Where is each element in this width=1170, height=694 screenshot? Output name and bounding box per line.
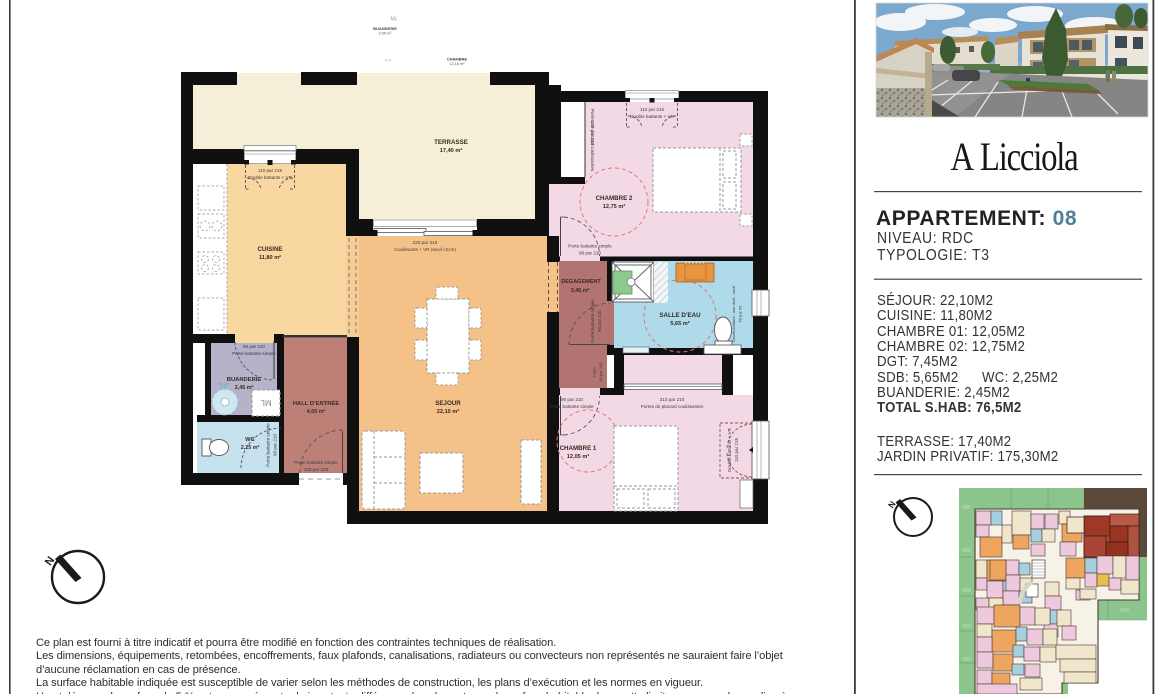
- svg-text:220 par 215: 220 par 215: [413, 240, 438, 245]
- svg-text:BUANDERIE: BUANDERIE: [373, 26, 397, 31]
- svg-text:CUISINE: CUISINE: [257, 246, 282, 253]
- svg-text:90 par 210: 90 par 210: [579, 251, 601, 256]
- svg-text:90 par 210: 90 par 210: [597, 310, 602, 332]
- svg-text:2,25 m²: 2,25 m²: [241, 445, 260, 451]
- svg-text:Porte battante simple: Porte battante simple: [568, 244, 612, 249]
- svg-text:Double battants + VR: Double battants + VR: [727, 427, 732, 471]
- svg-text:TERRASSE: TERRASSE: [434, 139, 468, 146]
- svg-text:HALL D’ENTRÉE: HALL D’ENTRÉE: [293, 399, 339, 407]
- svg-text:Porte battante simple: Porte battante simple: [550, 404, 594, 409]
- svg-text:160 par 210: 160 par 210: [590, 121, 595, 146]
- svg-text:110 par 215: 110 par 215: [734, 437, 739, 462]
- svg-text:100 par 210: 100 par 210: [304, 467, 329, 472]
- svg-text:ML: ML: [391, 17, 398, 23]
- svg-text:11,80 m²: 11,80 m²: [259, 254, 281, 261]
- svg-text:4,00 m²: 4,00 m²: [307, 409, 326, 415]
- svg-text:5,65 m²: 5,65 m²: [670, 320, 689, 327]
- svg-text:Porte battante simple: Porte battante simple: [294, 460, 338, 465]
- svg-text:12,05 m²: 12,05 m²: [567, 453, 590, 460]
- svg-text:17,40 m²: 17,40 m²: [440, 147, 463, 154]
- svg-text:Porte battante simple: Porte battante simple: [590, 299, 595, 343]
- svg-text:2,05 m²: 2,05 m²: [379, 32, 393, 36]
- svg-text:Double battants + VR: Double battants + VR: [630, 114, 674, 119]
- svg-text:Double battants + VR: Double battants + VR: [248, 175, 292, 180]
- svg-text:SEJOUR: SEJOUR: [435, 400, 461, 407]
- svg-text:Oscillo-battant - axe droit -: Oscillo-battant - axe droit - seuil: [731, 286, 736, 342]
- svg-text:DEGAGEMENT: DEGAGEMENT: [561, 279, 601, 285]
- svg-text:Portes de placard coulissantes: Portes de placard coulissantes: [641, 404, 704, 409]
- svg-text:BUANDERIE: BUANDERIE: [227, 377, 262, 383]
- svg-text:12,15 m²: 12,15 m²: [450, 62, 466, 66]
- svg-text:ML: ML: [260, 398, 272, 407]
- svg-text:CHAMBRE 2: CHAMBRE 2: [596, 195, 633, 202]
- svg-text:CHAMBRE: CHAMBRE: [447, 57, 468, 62]
- svg-text:110 par 215: 110 par 215: [640, 107, 665, 112]
- svg-text:F-S: F-S: [385, 59, 392, 63]
- svg-text:TGBT: TGBT: [592, 366, 597, 377]
- svg-text:SALLE D’EAU: SALLE D’EAU: [659, 312, 701, 319]
- svg-text:Porte battante simple: Porte battante simple: [232, 351, 276, 356]
- svg-text:12,75 m²: 12,75 m²: [603, 203, 626, 210]
- svg-text:90 par 210: 90 par 210: [273, 434, 278, 456]
- svg-text:Porte battante simple: Porte battante simple: [266, 423, 271, 467]
- svg-text:210 par 210: 210 par 210: [660, 397, 685, 402]
- svg-text:110 par 215: 110 par 215: [258, 168, 283, 173]
- svg-text:CHAMBRE 1: CHAMBRE 1: [560, 445, 597, 452]
- svg-text:60 par 95: 60 par 95: [738, 305, 743, 323]
- svg-text:90 par 210: 90 par 210: [243, 344, 265, 349]
- svg-text:90 par 100: 90 par 100: [598, 362, 603, 382]
- svg-text:22,10 m²: 22,10 m²: [437, 408, 460, 415]
- svg-text:2,45 m²: 2,45 m²: [235, 385, 254, 391]
- svg-text:3,45 m²: 3,45 m²: [571, 288, 590, 294]
- svg-text:90 par 210: 90 par 210: [561, 397, 583, 402]
- svg-text:Coulissants + VR (seuil <2cm): Coulissants + VR (seuil <2cm): [394, 247, 456, 252]
- svg-text:WC: WC: [245, 437, 255, 443]
